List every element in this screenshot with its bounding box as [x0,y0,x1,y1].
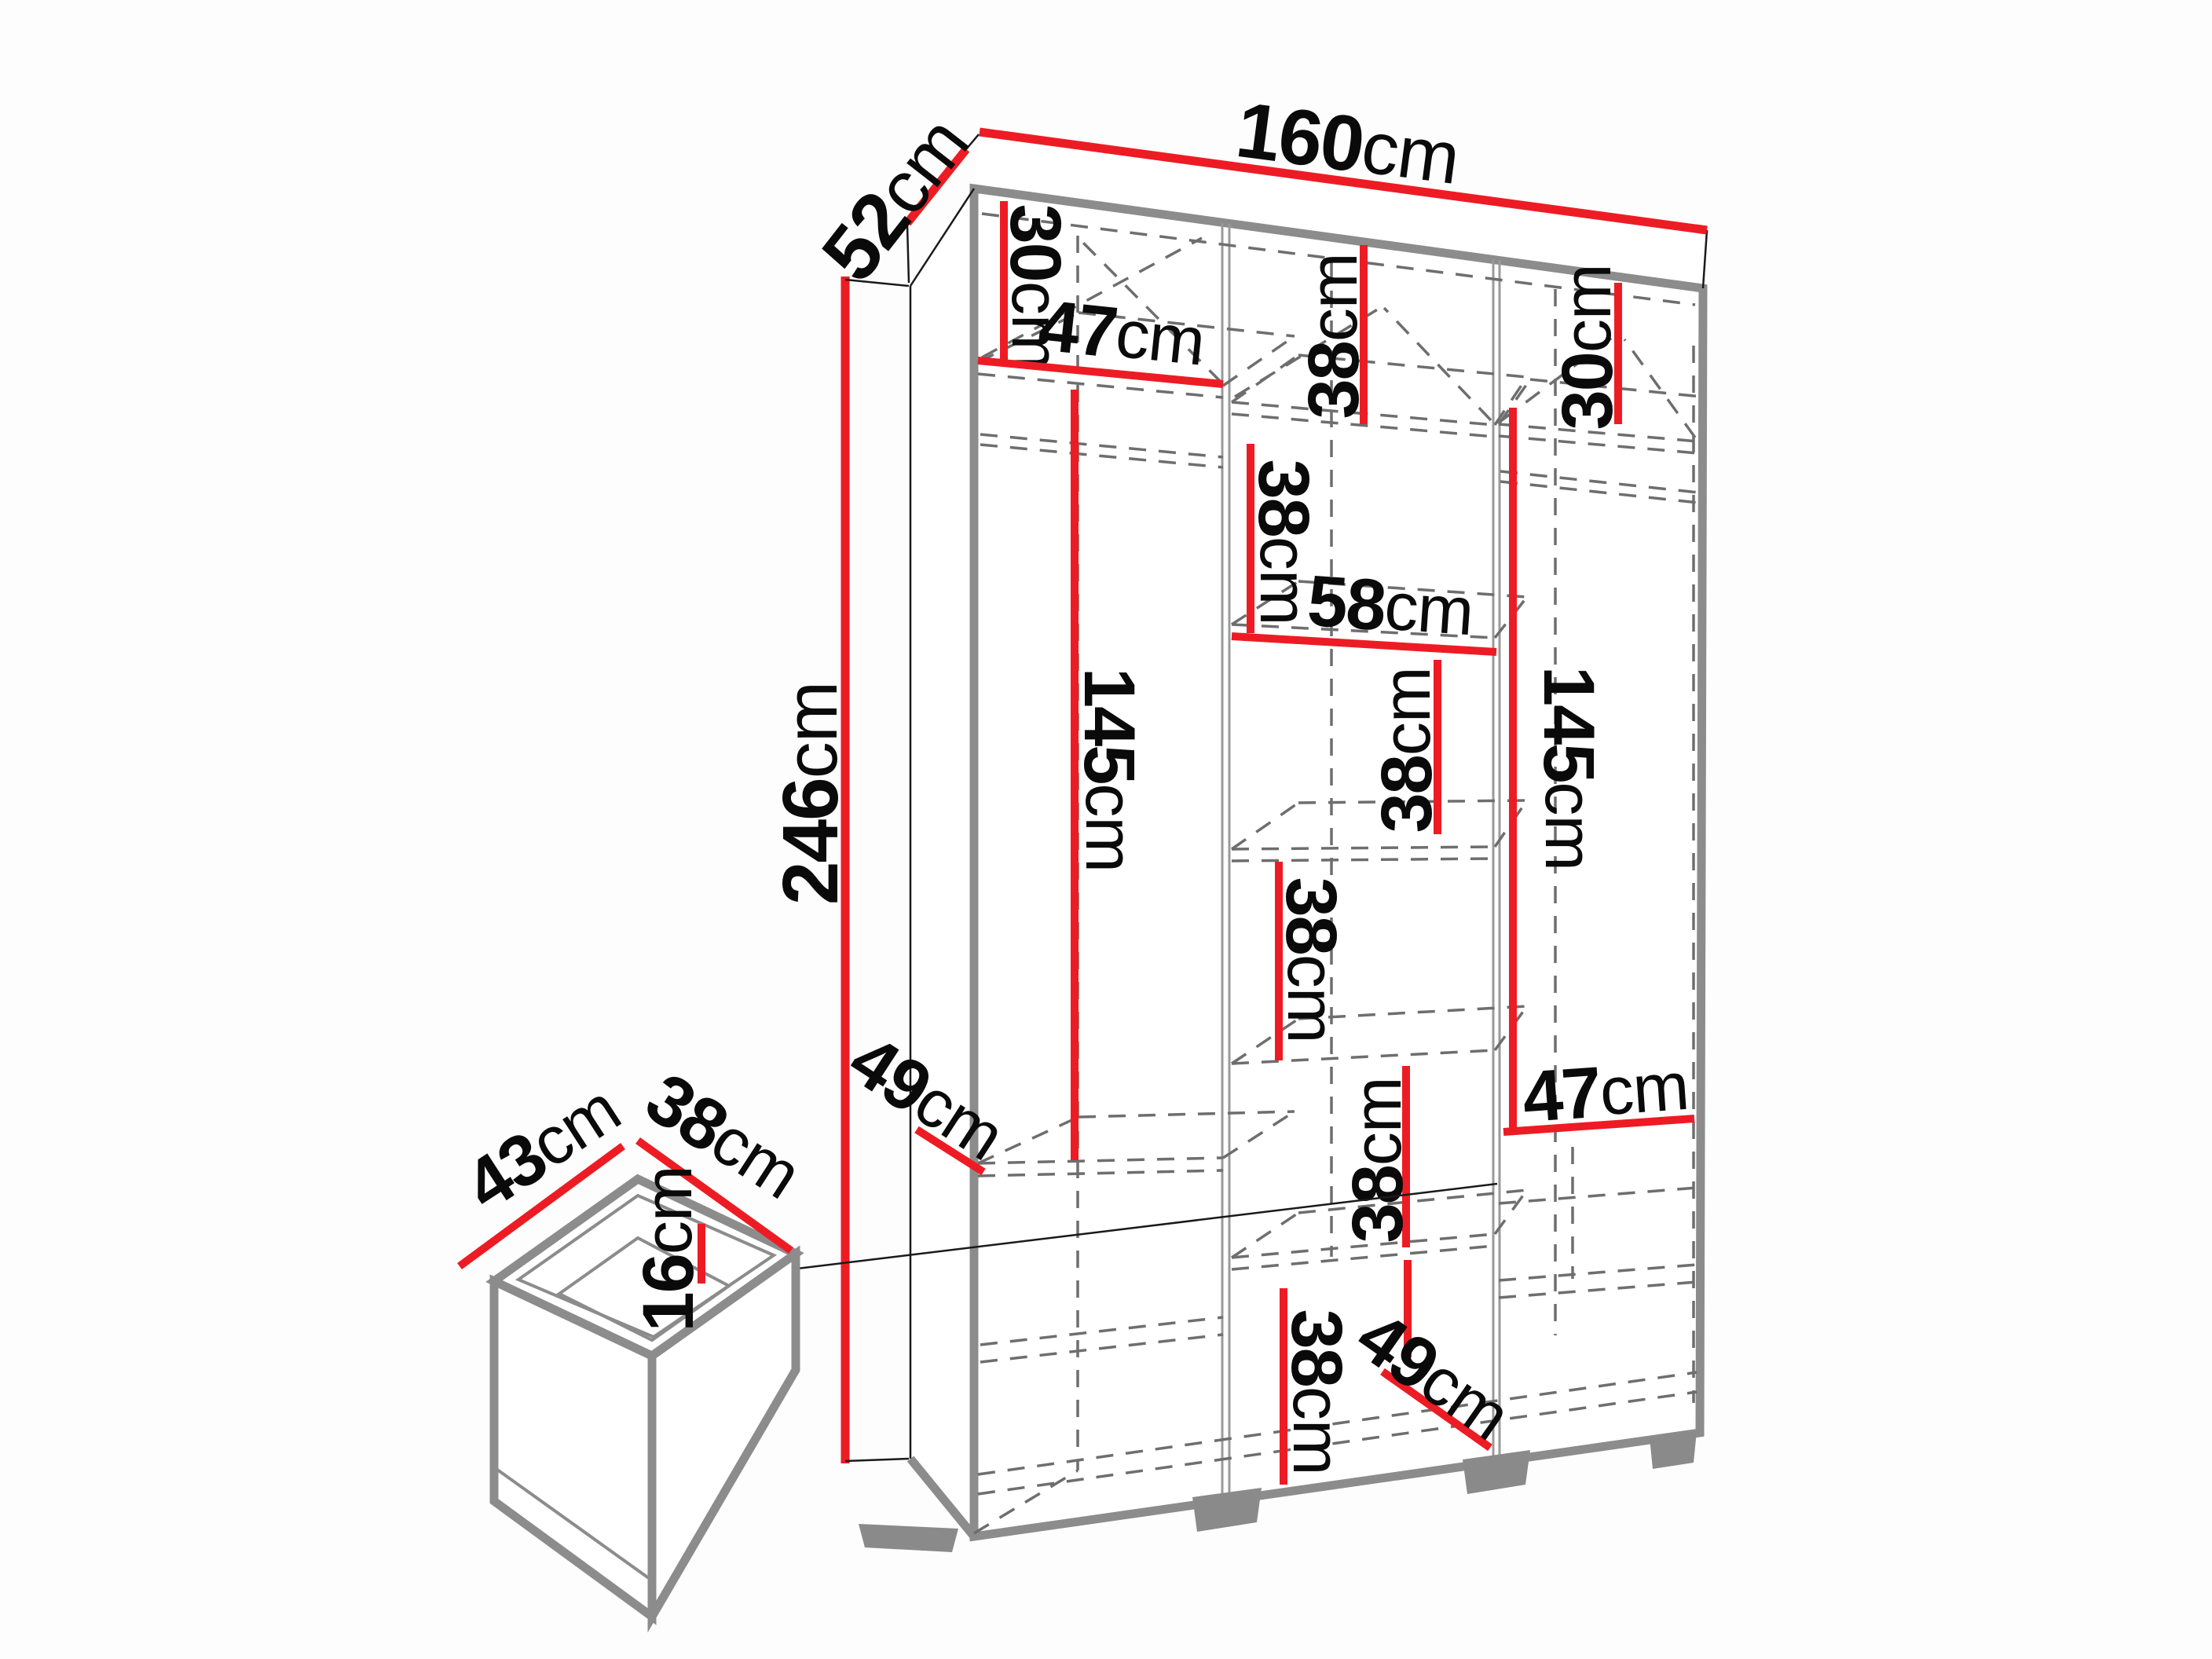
wardrobe-dimension-diagram: 160cm 52cm 246cm 30cm 47cm 145cm 49cm 38… [0,0,2212,1659]
dim-right-shelf30-label: 30cm [1547,265,1628,430]
dim-mid-38top-label: 38cm [1294,254,1374,419]
diagram-canvas: 160cm 52cm 246cm 30cm 47cm 145cm 49cm 38… [0,0,2212,1659]
dim-mid-38bottom-label: 38cm [1276,1309,1357,1475]
dim-right-hang145-label: 145cm [1529,666,1609,870]
dim-mid-38fifth-label: 38cm [1338,1078,1418,1243]
dim-mid-38third-label: 38cm [1367,668,1447,833]
dim-mid-width58-label: 58cm [1305,561,1476,652]
dim-height-label: 246cm [767,682,855,905]
dim-mid-38fourth-label: 38cm [1271,877,1351,1043]
dim-right-width47-label: 47cm [1520,1046,1691,1137]
cabinet-left-panel [910,189,974,1536]
dim-height-tick-bottom [845,1459,909,1461]
dim-left-hang145-label: 145cm [1069,668,1149,872]
dim-drawer-height16-label: 16cm [628,1166,709,1332]
